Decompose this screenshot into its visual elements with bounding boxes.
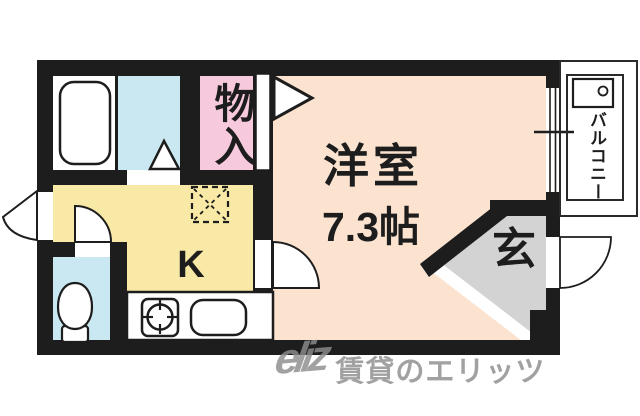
left-door-swing-icon: [3, 191, 37, 240]
watermark-logo: eliz: [273, 338, 329, 379]
window-opening: [546, 88, 560, 192]
watermark: eliz 賃貸のエリッツ: [276, 340, 545, 390]
washing-machine-icon: [573, 79, 613, 107]
washroom-doorway: [127, 170, 180, 185]
toilet-doorway: [75, 242, 110, 257]
wall-bath-washroom: [115, 76, 118, 170]
kitchen-label: K: [170, 246, 212, 284]
closet-door: [256, 74, 270, 170]
wall-toilet-right: [110, 242, 127, 340]
balcony-label: バルコニー: [583, 105, 605, 207]
entrance-door-swing-icon: [560, 237, 611, 288]
gas-stove-icon: [142, 299, 178, 336]
kitchen-room-doorway: [255, 240, 271, 288]
entrance-top-wall: [490, 200, 546, 216]
toilet-icon: [58, 283, 92, 342]
western-room-size: 7.3帖: [304, 207, 438, 248]
floorplan-image: 物入 洋室 7.3帖 K 玄 バルコニー eliz 賃貸のエリッツ: [0, 0, 640, 416]
watermark-brand: 賃貸のエリッツ: [335, 348, 545, 390]
western-room-label: 洋室: [316, 143, 430, 189]
sink-icon: [191, 300, 246, 335]
left-door-opening: [37, 192, 53, 240]
wall-top: [37, 60, 560, 76]
wall-washroom-closet: [180, 76, 200, 170]
entrance-label: 玄: [492, 228, 536, 272]
closet-label: 物入: [201, 79, 251, 171]
bathtub-icon: [60, 82, 110, 164]
entrance-doorway: [546, 237, 560, 288]
